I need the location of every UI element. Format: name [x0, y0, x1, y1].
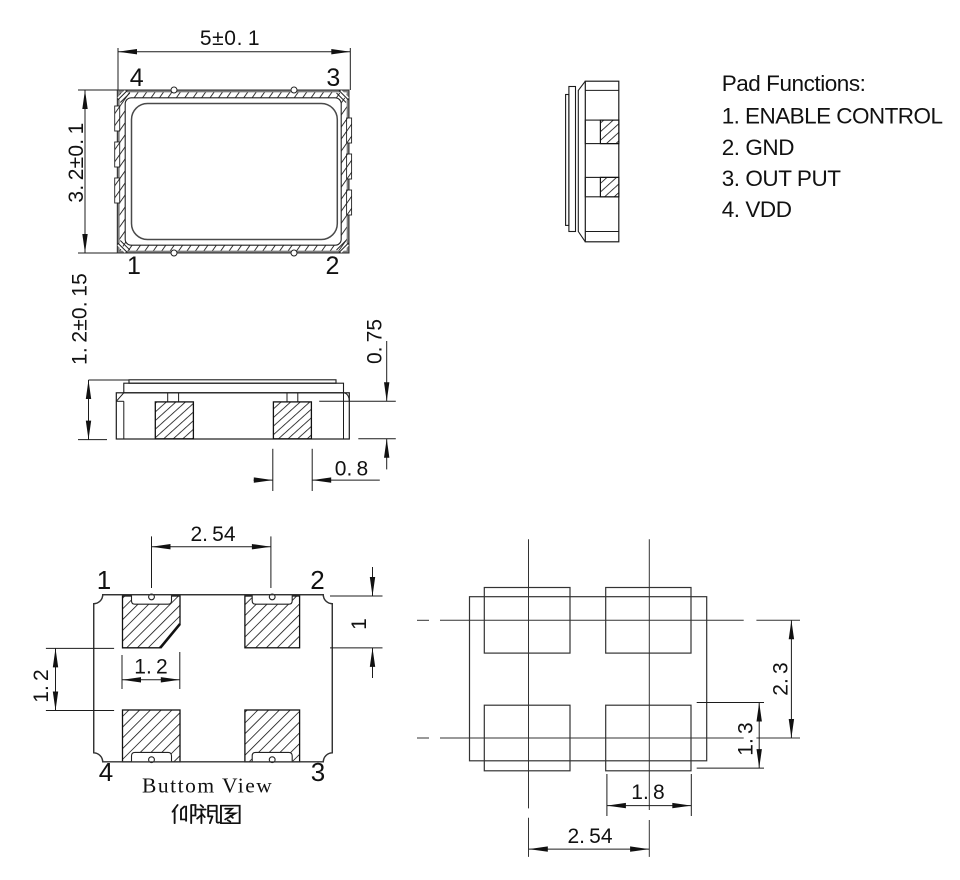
svg-text:4: 4 — [99, 757, 113, 787]
svg-text:2. 3: 2. 3 — [770, 662, 793, 695]
svg-text:3: 3 — [311, 757, 325, 787]
svg-text:1. ENABLE CONTROL: 1. ENABLE CONTROL — [722, 104, 943, 129]
svg-text:Pad Functions:: Pad Functions: — [722, 71, 866, 96]
svg-text:0. 8: 0. 8 — [335, 458, 368, 481]
svg-text:Buttom View: Buttom View — [142, 774, 273, 798]
svg-text:2: 2 — [310, 565, 324, 595]
svg-text:1. 2: 1. 2 — [134, 656, 167, 679]
svg-text:1. 2: 1. 2 — [30, 669, 53, 702]
svg-text:2. 54: 2. 54 — [567, 825, 612, 848]
svg-text:5±0. 1: 5±0. 1 — [200, 27, 260, 50]
svg-text:3. 2±0. 1: 3. 2±0. 1 — [65, 122, 88, 202]
svg-text:1: 1 — [97, 565, 111, 595]
svg-text:3: 3 — [326, 64, 340, 92]
svg-text:1: 1 — [127, 252, 141, 280]
svg-text:1. 8: 1. 8 — [631, 781, 664, 804]
svg-text:1. 3: 1. 3 — [735, 722, 758, 755]
svg-text:2: 2 — [326, 252, 340, 280]
svg-text:1. 2±0. 15: 1. 2±0. 15 — [69, 273, 92, 365]
svg-text:4. VDD: 4. VDD — [722, 197, 792, 222]
svg-text:3. OUT PUT: 3. OUT PUT — [722, 166, 842, 191]
svg-text:2. GND: 2. GND — [722, 135, 795, 160]
svg-text:0. 75: 0. 75 — [364, 319, 387, 364]
svg-text:1: 1 — [348, 618, 371, 630]
svg-text:2. 54: 2. 54 — [190, 523, 235, 546]
svg-text:4: 4 — [130, 64, 144, 92]
